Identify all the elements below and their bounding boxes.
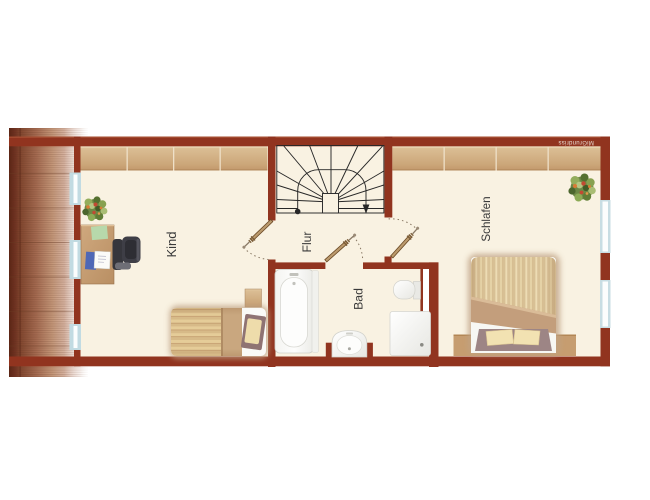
svg-text:Flur: Flur [300,232,314,253]
svg-text:Kind: Kind [164,231,179,257]
svg-text:Bad: Bad [352,288,366,310]
svg-text:MiGrundriss: MiGrundriss [558,139,594,145]
svg-text:Schlafen: Schlafen [480,196,493,241]
